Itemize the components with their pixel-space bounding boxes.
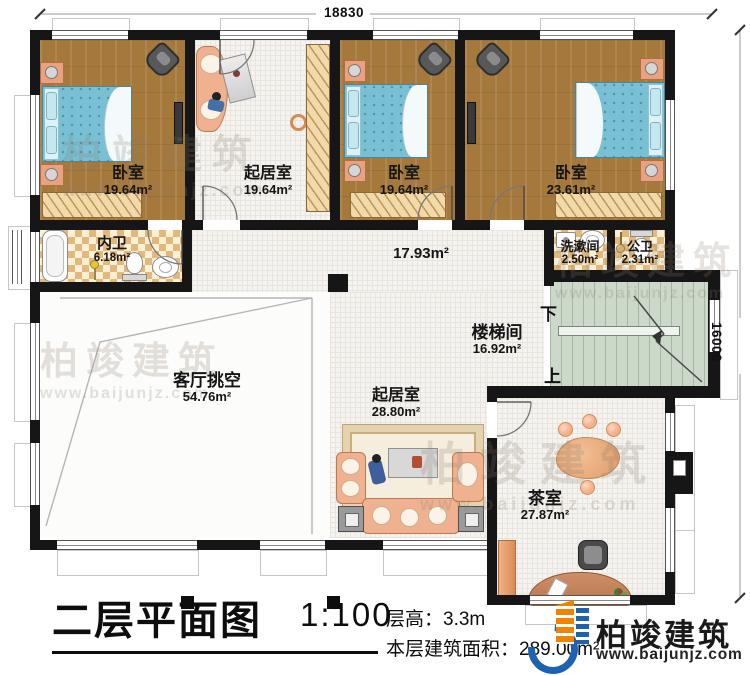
pillow <box>46 126 57 154</box>
window <box>665 100 675 190</box>
room-label-public-bath: 公卫 2.31m² <box>622 240 658 266</box>
void-floor <box>40 292 330 538</box>
sink-basin <box>159 262 172 273</box>
tv-panel <box>467 102 476 144</box>
window <box>57 540 197 550</box>
window <box>665 413 675 451</box>
pillow <box>348 122 359 149</box>
cushion <box>372 506 391 525</box>
room-label-bedroom-tm: 卧室 19.64m² <box>380 166 428 196</box>
wall <box>544 220 554 286</box>
cushion <box>341 458 360 475</box>
brand-logo-building-icon <box>576 608 589 644</box>
stair-up-label: 上 <box>544 362 561 387</box>
floor-plan-page: 卧室 19.64m² 起居室 19.64m² 卧室 19.64m² 卧室 23.… <box>0 0 750 675</box>
hall-floor <box>192 230 544 292</box>
window <box>665 508 675 572</box>
wall <box>455 30 465 230</box>
title-underline <box>52 651 378 654</box>
column-niche <box>673 460 686 476</box>
side-table <box>458 506 484 532</box>
area-label-hall: 17.93m² <box>393 246 449 262</box>
window-sill <box>260 550 327 576</box>
brand-website: www.baijunjz.com <box>596 646 743 664</box>
pillow <box>348 90 359 117</box>
wall <box>30 220 148 230</box>
window <box>30 443 40 505</box>
wall <box>607 228 615 270</box>
room-label-bedroom-tr: 卧室 23.61m² <box>547 166 595 196</box>
window-sill <box>675 530 695 594</box>
wall <box>182 220 192 292</box>
tea-stool <box>606 422 621 437</box>
tv-panel <box>174 102 183 144</box>
lamp-icon <box>645 62 658 75</box>
room-label-tea-room: 茶室 27.87m² <box>521 490 569 521</box>
office-chair-seat <box>584 546 602 564</box>
room-label-inner-bath: 内卫 6.18m² <box>94 236 130 264</box>
tea-table <box>556 437 620 479</box>
stair-down-label: 下 <box>540 300 557 325</box>
bay-window <box>12 230 22 284</box>
wall <box>30 282 192 292</box>
wall <box>452 220 490 230</box>
window <box>260 540 325 550</box>
wall <box>497 386 720 398</box>
room-label-stairwell: 楼梯间 16.92m² <box>472 324 523 355</box>
cabinet <box>498 540 516 598</box>
tea-stool <box>580 480 595 495</box>
window <box>383 540 487 550</box>
bathtub-inner <box>46 235 64 277</box>
lamp-icon <box>645 164 658 177</box>
flower-deco <box>233 70 240 77</box>
plant-flower <box>618 590 622 594</box>
toilet-tank <box>630 230 653 237</box>
table-deco <box>412 456 422 468</box>
lamp-icon <box>45 66 58 79</box>
plan-title: 二层平面图 <box>52 588 262 646</box>
wall <box>487 386 497 402</box>
window <box>540 30 633 40</box>
pillow <box>650 122 661 150</box>
wall-column <box>328 274 348 292</box>
dimension-right: 16000 <box>709 322 724 362</box>
brand-logo-building-icon <box>556 600 574 644</box>
side-table <box>338 506 364 532</box>
room-label-washroom: 洗漱间 2.50m² <box>560 240 599 266</box>
pillow <box>650 88 661 116</box>
window-sill <box>383 550 489 576</box>
room-label-sitting-top: 起居室 19.64m² <box>244 166 292 196</box>
tea-stool <box>558 422 573 437</box>
room-label-sitting-bottom: 起居室 28.80m² <box>372 388 420 418</box>
window <box>52 30 128 40</box>
lamp-icon <box>348 164 361 177</box>
toilet-tank <box>122 274 147 281</box>
window <box>220 30 307 40</box>
lamp-icon <box>348 64 361 77</box>
room-label-bedroom-tl: 卧室 19.64m² <box>104 166 152 196</box>
window <box>30 323 40 420</box>
floor-height-text: 层高：3.3m <box>386 604 485 631</box>
cushion <box>341 480 360 497</box>
window-sill <box>57 550 199 576</box>
window <box>530 595 630 605</box>
dimension-top: 18830 <box>318 5 370 20</box>
lamp-icon <box>45 168 58 181</box>
plan-scale: 1:100 <box>300 596 393 634</box>
pillow <box>46 92 57 120</box>
tea-stool <box>582 414 597 429</box>
wall <box>548 270 720 282</box>
wall <box>185 30 195 230</box>
blanket-fold <box>402 85 427 157</box>
wall <box>330 30 340 230</box>
blanket-fold <box>104 87 131 161</box>
wardrobe <box>306 44 330 212</box>
window <box>373 30 458 40</box>
room-label-void: 客厅挑空 54.76m² <box>173 372 241 403</box>
plant-stand-pole <box>94 268 96 280</box>
person-figure <box>372 454 381 463</box>
stair-handrail <box>558 326 680 336</box>
cushion <box>457 462 478 487</box>
cushion <box>428 506 447 525</box>
window <box>30 95 40 195</box>
cushion <box>400 508 419 527</box>
window <box>30 232 40 282</box>
wall <box>487 438 497 605</box>
wall <box>240 220 418 230</box>
round-stool <box>290 114 307 131</box>
cushion <box>200 54 222 74</box>
